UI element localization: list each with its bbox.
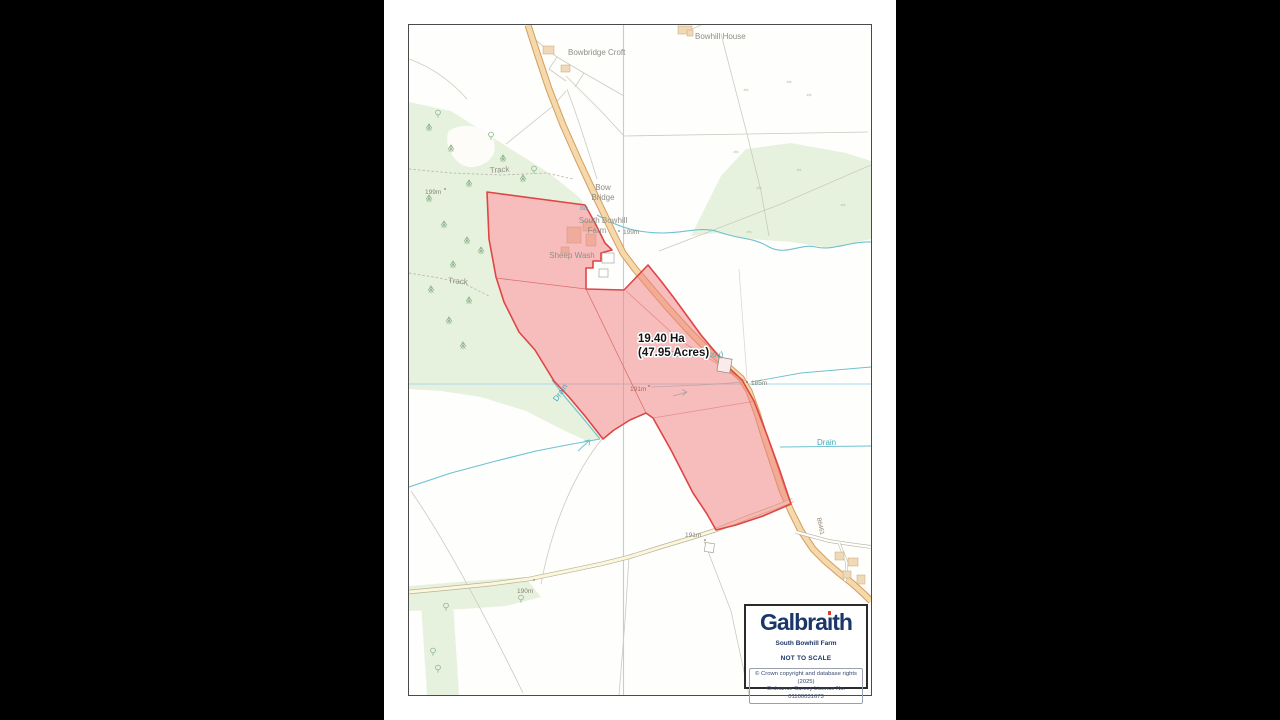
- map-canvas: Bowhill House Bowbridge Croft Track 199m…: [409, 25, 871, 695]
- label-bow-bridge-1: Bow: [595, 183, 611, 192]
- parcel-area-acres: (47.95 Acres): [638, 347, 709, 359]
- label-track-lower: Track: [448, 276, 469, 286]
- label-farm-2: Farm: [588, 226, 607, 235]
- galbraith-logo: Galbraıth: [746, 609, 866, 635]
- map-page: Bowhill House Bowbridge Croft Track 199m…: [384, 0, 896, 720]
- label-drain-east: Drain: [817, 438, 836, 447]
- logo-red-dot-icon: [828, 611, 832, 615]
- copyright-line-2: Ordnance Survey Licence No. 01100031673: [751, 686, 861, 701]
- label-bowbridge-croft: Bowbridge Croft: [568, 48, 626, 57]
- label-issues: Iss: [580, 205, 589, 212]
- property-name: South Bowhill Farm: [746, 640, 866, 647]
- scale-note: NOT TO SCALE: [746, 655, 866, 662]
- label-spot-199-wood: 199m: [425, 189, 441, 196]
- label-spot-199-farm: 199m: [623, 229, 639, 236]
- copyright-line-1: © Crown copyright and database rights (2…: [751, 671, 861, 686]
- label-spot-185: 185m: [751, 380, 767, 387]
- label-sheep-wash: Sheep Wash: [549, 251, 595, 260]
- legend-box: Galbraıth South Bowhill Farm NOT TO SCAL…: [744, 604, 868, 689]
- reservoir-structure: [717, 357, 732, 373]
- parcel-area-hectares: 19.40 Ha: [638, 333, 685, 345]
- label-spot-191-track: 191m: [685, 532, 701, 539]
- label-bow-bridge-2: Bridge: [591, 193, 615, 202]
- logo-letter-i: ı: [827, 609, 832, 635]
- label-spot-190: 190m: [517, 588, 533, 595]
- label-spot-191-field: 191m: [630, 386, 646, 393]
- map-frame: Bowhill House Bowbridge Croft Track 199m…: [408, 24, 872, 696]
- label-track-upper: Track: [490, 165, 511, 175]
- label-farm-1: South Bowhill: [579, 216, 628, 225]
- logo-text-prefix: Galbra: [760, 609, 827, 635]
- screenshot-stage: Bowhill House Bowbridge Croft Track 199m…: [0, 0, 1280, 720]
- logo-text-suffix: th: [832, 609, 852, 635]
- copyright-box: © Crown copyright and database rights (2…: [749, 668, 863, 704]
- label-bowhill-house: Bowhill House: [695, 32, 746, 41]
